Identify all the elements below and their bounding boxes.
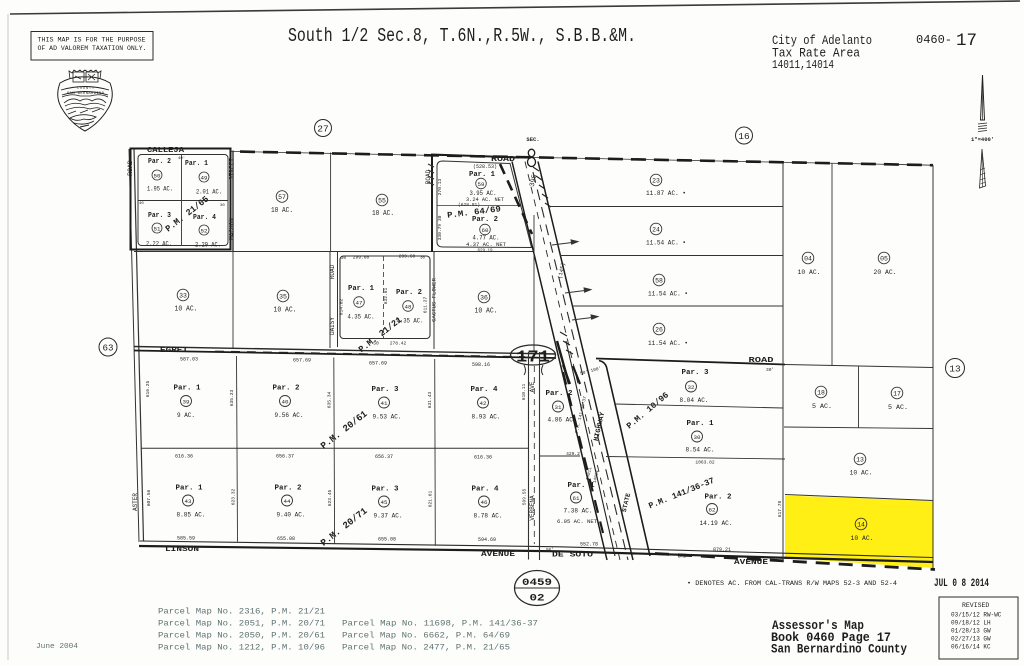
svg-text:616.36: 616.36: [474, 455, 492, 461]
svg-text:26: 26: [655, 327, 663, 334]
svg-text:48: 48: [405, 304, 412, 311]
svg-text:2.01 AC.: 2.01 AC.: [196, 189, 222, 196]
svg-text:Parcel Map No. 2477, P.M. 21/6: Parcel Map No. 2477, P.M. 21/65: [342, 644, 510, 653]
svg-text:03/15/12 RW-WC: 03/15/12 RW-WC: [951, 612, 1002, 619]
svg-text:587.03: 587.03: [180, 357, 198, 363]
svg-text:Par. 2: Par. 2: [472, 216, 498, 224]
svg-text:16: 16: [738, 131, 750, 142]
svg-text:Par. 1: Par. 1: [174, 385, 201, 393]
svg-text:8.04 AC.: 8.04 AC.: [680, 397, 709, 404]
svg-text:629.19: 629.19: [477, 250, 493, 254]
svg-text:Parcel Map No. 2051, P.M. 20/7: Parcel Map No. 2051, P.M. 20/71: [158, 620, 325, 629]
svg-text:50': 50': [770, 558, 778, 563]
svg-text:05: 05: [880, 256, 888, 263]
svg-text:31: 31: [555, 404, 562, 411]
svg-text:Parcel Map No. 2050, P.M. 20/6: Parcel Map No. 2050, P.M. 20/61: [158, 632, 325, 641]
svg-text:35: 35: [279, 294, 287, 301]
svg-text:STREET: STREET: [229, 158, 236, 180]
svg-text:10 AC.: 10 AC.: [271, 207, 293, 215]
svg-text:COUNTY: COUNTY: [77, 87, 94, 91]
svg-text:631.43: 631.43: [427, 391, 433, 408]
svg-text:171: 171: [516, 349, 550, 368]
svg-text:10 AC.: 10 AC.: [372, 210, 394, 218]
svg-text:42: 42: [480, 400, 487, 407]
svg-text:41: 41: [381, 400, 388, 407]
svg-text:17: 17: [893, 391, 901, 398]
svg-text:9.40 AC.: 9.40 AC.: [277, 512, 306, 519]
svg-text:30: 30: [220, 204, 225, 208]
svg-text:DE SOTO: DE SOTO: [552, 552, 594, 560]
svg-text:AVE: AVE: [529, 381, 536, 392]
svg-text:656.37: 656.37: [276, 454, 294, 460]
svg-text:299.60: 299.60: [353, 255, 370, 261]
svg-text:40: 40: [139, 202, 144, 206]
svg-text:607.56: 607.56: [146, 489, 152, 506]
svg-text:06/16/14 KC: 06/16/14 KC: [951, 644, 991, 651]
svg-text:Par. 1: Par. 1: [687, 420, 714, 428]
svg-text:13: 13: [856, 457, 864, 464]
svg-text:Par. 2: Par. 2: [273, 385, 300, 393]
svg-text:58: 58: [655, 278, 663, 285]
svg-text:REVISED: REVISED: [962, 602, 989, 609]
svg-text:330.79 30: 330.79 30: [437, 215, 443, 240]
svg-text:552.78: 552.78: [580, 542, 598, 548]
svg-text:(528.53): (528.53): [473, 164, 497, 170]
svg-text:30: 30: [341, 257, 347, 261]
svg-text:10 AC.: 10 AC.: [798, 269, 821, 276]
svg-text:635.23: 635.23: [229, 389, 235, 406]
svg-text:24: 24: [652, 227, 660, 234]
svg-text:Par. 1: Par. 1: [185, 160, 208, 168]
svg-text:VERBENA: VERBENA: [529, 495, 536, 521]
svg-text:621.61: 621.61: [428, 490, 434, 507]
svg-text:45: 45: [381, 499, 388, 506]
svg-text:30: 30: [694, 434, 701, 441]
svg-text:Par. 4: Par. 4: [471, 386, 498, 394]
svg-text:June 2004: June 2004: [36, 643, 79, 651]
svg-text:655.08: 655.08: [277, 536, 295, 542]
svg-text:JUL 0 8 2014: JUL 0 8 2014: [934, 578, 989, 590]
svg-text:10 AC.: 10 AC.: [274, 307, 297, 315]
svg-text:10 AC.: 10 AC.: [475, 308, 498, 316]
svg-text:611.27: 611.27: [423, 296, 429, 313]
svg-text:30': 30': [766, 367, 774, 373]
svg-text:1"=400': 1"=400': [971, 136, 994, 143]
svg-text:278.42: 278.42: [390, 341, 407, 347]
svg-text:4.35 AC.: 4.35 AC.: [348, 314, 375, 321]
svg-text:10 AC.: 10 AC.: [851, 535, 874, 542]
svg-text:27: 27: [317, 124, 328, 135]
svg-text:11.54 AC. •: 11.54 AC. •: [646, 240, 686, 247]
svg-text:33: 33: [179, 293, 187, 300]
svg-text:47: 47: [356, 300, 363, 307]
svg-text:EGRET: EGRET: [160, 347, 189, 355]
svg-text:51: 51: [154, 226, 161, 233]
svg-text:10 AC.: 10 AC.: [850, 470, 873, 477]
svg-text:11.54 AC. •: 11.54 AC. •: [648, 291, 688, 298]
svg-text:Par. 2: Par. 2: [148, 158, 171, 166]
svg-text:9 AC.: 9 AC.: [177, 412, 195, 419]
svg-text:02: 02: [530, 593, 545, 605]
svg-text:Par. 1: Par. 1: [469, 171, 495, 179]
svg-text:616.36: 616.36: [175, 454, 193, 460]
svg-text:0460-: 0460-: [916, 33, 952, 47]
svg-text:585.59: 585.59: [177, 536, 195, 542]
svg-text:40: 40: [282, 399, 289, 406]
svg-text:60: 60: [482, 227, 489, 234]
svg-text:ASTER: ASTER: [132, 493, 139, 511]
svg-text:879.21: 879.21: [713, 547, 731, 553]
svg-text:AVENUE: AVENUE: [734, 559, 769, 567]
svg-text:32: 32: [688, 384, 695, 391]
svg-text:OF AD VALOREM TAXATION ONLY.: OF AD VALOREM TAXATION ONLY.: [38, 45, 147, 53]
svg-text:52: 52: [201, 228, 208, 235]
svg-text:04: 04: [804, 256, 812, 263]
svg-text:623.32: 623.32: [231, 488, 237, 505]
svg-text:ROAD: ROAD: [329, 264, 336, 279]
svg-text:39: 39: [183, 399, 190, 406]
svg-text:AVENUE: AVENUE: [481, 551, 516, 559]
svg-text:2.22 AC.: 2.22 AC.: [146, 241, 172, 248]
svg-text:623.45: 623.45: [327, 489, 333, 506]
svg-text:43: 43: [185, 498, 192, 505]
svg-text:49: 49: [201, 175, 208, 182]
svg-text:657.69: 657.69: [293, 358, 311, 364]
svg-text:62: 62: [709, 507, 716, 514]
svg-text:DAISY: DAISY: [329, 317, 336, 335]
svg-text:San Bernardino County: San Bernardino County: [771, 643, 907, 657]
svg-text:11.87 AC. •: 11.87 AC. •: [646, 190, 686, 197]
svg-text:8.78 AC.: 8.78 AC.: [474, 513, 503, 520]
svg-text:Parcel Map No. 1212, P.M. 10/9: Parcel Map No. 1212, P.M. 10/96: [158, 644, 325, 653]
svg-text:30: 30: [420, 257, 426, 261]
svg-text:9.53 AC.: 9.53 AC.: [373, 414, 402, 421]
svg-text:G.D: G.D: [678, 554, 687, 560]
svg-text:63: 63: [103, 343, 114, 354]
svg-text:20 AC.: 20 AC.: [874, 269, 897, 276]
svg-text:299.60: 299.60: [399, 254, 416, 260]
svg-text:1063.82: 1063.82: [695, 460, 715, 466]
svg-text:632.61: 632.61: [383, 287, 389, 304]
svg-text:61: 61: [573, 495, 580, 502]
svg-text:8.93 AC.: 8.93 AC.: [472, 414, 501, 421]
svg-text:13: 13: [949, 364, 961, 375]
svg-text:Par. 4: Par. 4: [193, 214, 216, 222]
svg-text:1.95 AC.: 1.95 AC.: [147, 186, 173, 193]
svg-text:429.2: 429.2: [566, 451, 580, 457]
svg-text:Par. 3: Par. 3: [372, 386, 399, 394]
svg-text:635.34: 635.34: [327, 391, 333, 408]
svg-text:59: 59: [478, 181, 485, 188]
svg-text:36: 36: [480, 295, 488, 302]
svg-text:Par. 3: Par. 3: [682, 369, 709, 377]
svg-text:South 1/2 Sec.8, T.6N.,R.5W.,: South 1/2 Sec.8, T.6N.,R.5W., S.B.B.&M.: [288, 25, 636, 47]
svg-text:0459: 0459: [522, 577, 552, 589]
svg-text:55: 55: [378, 198, 386, 205]
svg-text:Parcel Map No. 6662, P.M. 64/6: Parcel Map No. 6662, P.M. 64/69: [342, 632, 510, 641]
svg-text:Par. 1: Par. 1: [348, 285, 374, 293]
svg-text:CACTUS FLOWER: CACTUS FLOWER: [431, 278, 438, 322]
svg-text:Par. 3: Par. 3: [148, 212, 171, 220]
svg-text:Par. 2: Par. 2: [705, 494, 732, 502]
svg-text:Parcel Map No. 2316, P.M. 21/2: Parcel Map No. 2316, P.M. 21/21: [158, 608, 325, 617]
svg-text:18: 18: [817, 390, 825, 397]
svg-text:17: 17: [956, 31, 977, 51]
svg-text:599.55: 599.55: [522, 488, 528, 505]
svg-text:SAN BERNARDINO: SAN BERNARDINO: [67, 92, 105, 96]
svg-text:11.54 AC. •: 11.54 AC. •: [648, 340, 688, 347]
svg-text:01/28/13 GW: 01/28/13 GW: [951, 628, 991, 635]
svg-text:9.37 AC.: 9.37 AC.: [374, 513, 403, 520]
svg-text:10 AC.: 10 AC.: [175, 306, 198, 314]
svg-text:44: 44: [284, 498, 291, 505]
svg-text:4.37 AC. NET: 4.37 AC. NET: [466, 242, 507, 248]
svg-text:7.38 AC.: 7.38 AC.: [564, 508, 593, 515]
svg-text:THIS MAP IS FOR THE PURPOSE: THIS MAP IS FOR THE PURPOSE: [38, 37, 146, 45]
svg-text:• DENOTES AC. FROM CAL-TRANS R: • DENOTES AC. FROM CAL-TRANS R/W MAPS 52…: [687, 580, 897, 588]
svg-text:594.69: 594.69: [478, 537, 496, 543]
svg-text:CALLEJA: CALLEJA: [147, 147, 185, 155]
svg-text:57: 57: [278, 194, 286, 201]
svg-text:09/18/12 LH: 09/18/12 LH: [951, 620, 991, 627]
svg-text:5 AC.: 5 AC.: [812, 403, 832, 410]
svg-text:50: 50: [373, 341, 379, 347]
svg-text:5 AC.: 5 AC.: [888, 404, 908, 411]
svg-text:8.54 AC.: 8.54 AC.: [686, 447, 715, 454]
svg-text:6.05 AC. NET: 6.05 AC. NET: [557, 518, 598, 525]
svg-text:656.37: 656.37: [375, 454, 393, 460]
svg-text:50': 50': [546, 548, 554, 553]
svg-text:Par. 2: Par. 2: [275, 485, 302, 493]
svg-text:Par. 2: Par. 2: [396, 289, 422, 297]
svg-text:617.78: 617.78: [777, 500, 783, 517]
svg-text:SEC.: SEC.: [526, 136, 539, 143]
svg-text:14: 14: [857, 522, 865, 529]
svg-text:270.13: 270.13: [437, 178, 443, 195]
svg-text:657.69: 657.69: [369, 361, 387, 367]
svg-text:02/27/13 GW: 02/27/13 GW: [951, 636, 991, 643]
svg-text:9.56 AC.: 9.56 AC.: [275, 412, 304, 419]
svg-text:4.86 AC.: 4.86 AC.: [548, 417, 577, 424]
svg-text:8.85 AC.: 8.85 AC.: [177, 512, 206, 519]
svg-text:598.16: 598.16: [472, 362, 490, 368]
svg-text:Par. 1: Par. 1: [176, 485, 203, 493]
svg-text:MACHON: MACHON: [229, 218, 236, 240]
svg-text:616.25: 616.25: [145, 380, 151, 397]
svg-text:ROAD: ROAD: [127, 160, 134, 176]
svg-text:14011,14014: 14011,14014: [772, 59, 834, 72]
svg-text:Par. 4: Par. 4: [472, 486, 499, 494]
svg-text:LINSON: LINSON: [165, 546, 199, 554]
svg-text:Par. 3: Par. 3: [372, 486, 399, 494]
svg-text:4.77 AC.: 4.77 AC.: [473, 235, 500, 242]
svg-text:23: 23: [652, 178, 660, 185]
svg-text:655.08: 655.08: [378, 537, 396, 543]
svg-text:ROAD: ROAD: [749, 357, 775, 365]
svg-text:2.29 AC.: 2.29 AC.: [195, 242, 221, 249]
svg-text:50: 50: [154, 173, 161, 180]
svg-text:46: 46: [481, 499, 488, 506]
svg-text:3.95 AC.: 3.95 AC.: [470, 190, 497, 197]
svg-text:Parcel Map No. 11698, P.M. 141: Parcel Map No. 11698, P.M. 141/36-37: [342, 620, 538, 629]
svg-text:14.19 AC.: 14.19 AC.: [700, 520, 733, 527]
svg-text:610.11: 610.11: [521, 383, 527, 400]
svg-text:614.02: 614.02: [339, 298, 345, 315]
